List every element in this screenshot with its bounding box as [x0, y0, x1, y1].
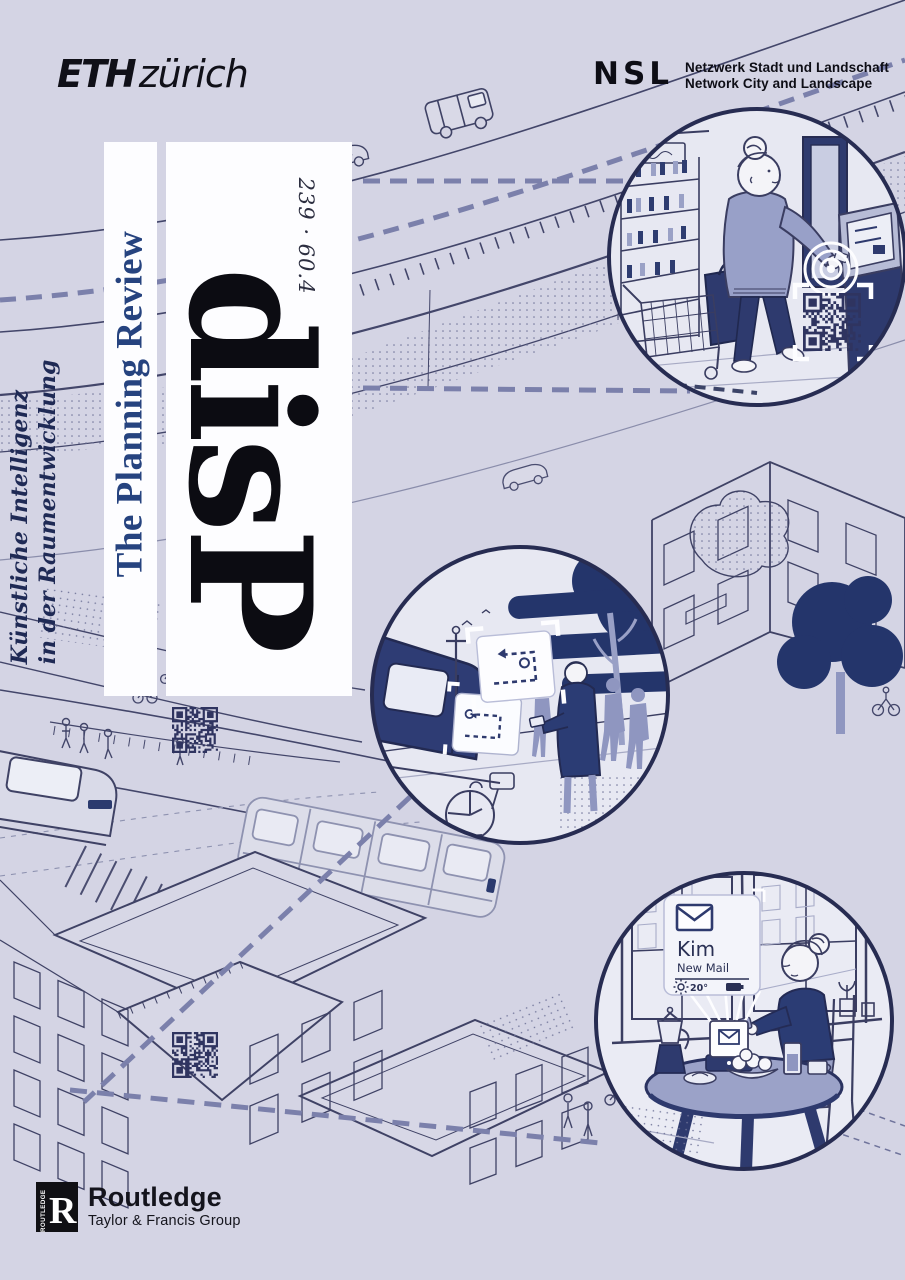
mail-icon [677, 905, 712, 930]
issue-theme-line2: in der Raumentwicklung [34, 360, 62, 665]
journal-cover: Kim New Mail 20° The Planning Review dis… [0, 0, 905, 1280]
buildings-bottom-left [0, 852, 608, 1208]
tram-front [0, 750, 116, 845]
cup [808, 1061, 827, 1074]
routledge-name: Routledge [88, 1182, 241, 1212]
nsl-abbr: NSL [593, 58, 673, 90]
person-head [738, 154, 780, 196]
notification-temp: 20° [690, 983, 708, 994]
eth-zurich-logo: ETHzürich [57, 52, 248, 96]
routledge-vertical-label: ROUTLEDGE [40, 1190, 47, 1232]
car-2 [500, 462, 549, 493]
person-sweater [724, 192, 794, 298]
routledge-r-glyph: R [49, 1190, 77, 1232]
notification-card: Kim New Mail 20° [664, 890, 764, 995]
tree-outline [690, 491, 789, 577]
eth-logo-abbr: ETH [57, 52, 135, 96]
qr-code-street [172, 707, 218, 753]
vignette-self-checkout [607, 107, 905, 407]
battery-icon [726, 983, 741, 991]
notification-sender: Kim [677, 937, 715, 961]
van [424, 87, 496, 141]
routledge-logo: ROUTLEDGE R Routledge Taylor & Francis G… [36, 1182, 241, 1232]
plate [684, 1072, 716, 1084]
vignette-street [370, 545, 670, 845]
phone [529, 716, 545, 728]
issue-theme: Künstliche Intelligenz in der Raumentwic… [6, 360, 62, 665]
eth-logo-city: zürich [139, 52, 248, 96]
journal-logo: disP [151, 267, 349, 649]
issue-number: 239 · 60.4 [294, 178, 318, 295]
issue-theme-line1: Künstliche Intelligenz [6, 360, 34, 665]
routledge-group: Taylor & Francis Group [88, 1213, 241, 1229]
vignette-home: Kim New Mail 20° [594, 871, 894, 1171]
nsl-line-de: Netzwerk Stadt und Landschaft [685, 60, 889, 76]
nsl-line-en: Network City and Landscape [685, 76, 889, 92]
journal-subtitle: The Planning Review [109, 231, 152, 578]
notification-subject: New Mail [677, 961, 729, 975]
nsl-logo: NSL Netzwerk Stadt und Landschaft Networ… [593, 58, 889, 92]
routledge-icon: ROUTLEDGE R [36, 1182, 78, 1232]
pedestrians [62, 719, 183, 766]
